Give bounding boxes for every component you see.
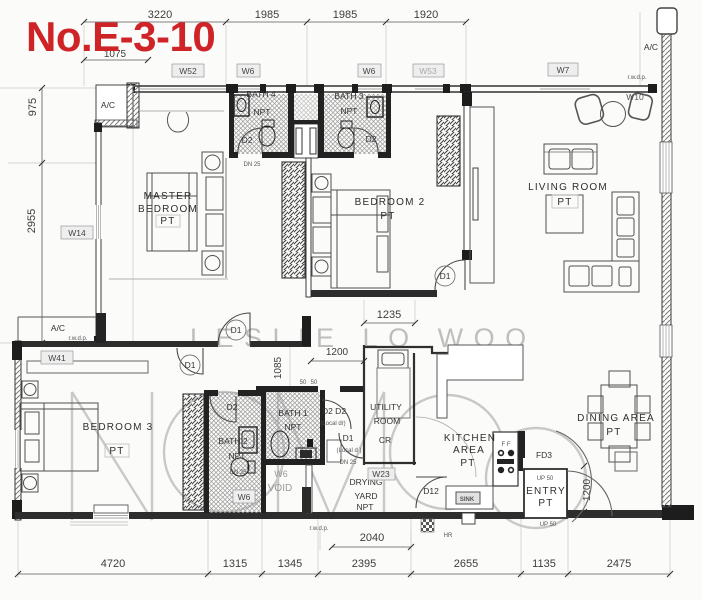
svg-text:1985: 1985 xyxy=(333,9,357,21)
svg-text:2955: 2955 xyxy=(26,209,38,233)
svg-text:r.w.d.p.: r.w.d.p. xyxy=(68,336,87,342)
svg-text:1235: 1235 xyxy=(377,309,401,321)
svg-text:PT: PT xyxy=(606,427,621,438)
svg-text:W6: W6 xyxy=(363,66,376,76)
svg-text:50: 50 xyxy=(300,380,307,386)
svg-text:1200: 1200 xyxy=(326,347,349,358)
svg-text:W53: W53 xyxy=(419,66,437,76)
svg-text:1985: 1985 xyxy=(255,9,279,21)
svg-text:W6: W6 xyxy=(274,469,288,479)
svg-text:UP 50: UP 50 xyxy=(537,476,554,482)
svg-text:AREA: AREA xyxy=(453,445,485,456)
svg-text:F F: F F xyxy=(502,442,511,448)
svg-text:BEDROOM 2: BEDROOM 2 xyxy=(355,197,426,208)
svg-text:W10: W10 xyxy=(626,92,644,102)
svg-text:50: 50 xyxy=(311,380,318,386)
svg-text:NPT: NPT xyxy=(285,422,302,432)
svg-text:NPT: NPT xyxy=(357,502,374,512)
svg-text:BEDROOM: BEDROOM xyxy=(138,204,198,215)
svg-text:r.w.d.p.: r.w.d.p. xyxy=(627,75,646,81)
svg-text:DINING AREA: DINING AREA xyxy=(577,413,655,424)
svg-text:2040: 2040 xyxy=(360,532,384,544)
svg-text:W7: W7 xyxy=(557,65,570,75)
svg-text:W6: W6 xyxy=(238,492,251,502)
svg-text:r.w.d.p.: r.w.d.p. xyxy=(309,526,328,532)
svg-text:4720: 4720 xyxy=(101,558,125,570)
svg-text:W23: W23 xyxy=(372,469,390,479)
svg-text:A/C: A/C xyxy=(101,100,115,110)
svg-text:HR: HR xyxy=(444,533,453,539)
svg-text:PT: PT xyxy=(557,197,572,208)
svg-text:2475: 2475 xyxy=(607,558,631,570)
svg-text:D1: D1 xyxy=(343,433,354,443)
svg-text:W52: W52 xyxy=(179,66,197,76)
svg-text:NPT: NPT xyxy=(229,451,246,461)
svg-text:DN 25: DN 25 xyxy=(243,162,261,168)
svg-text:D2 D2: D2 D2 xyxy=(322,406,346,416)
svg-text:D2: D2 xyxy=(242,135,253,145)
svg-text:NPT: NPT xyxy=(341,106,358,116)
svg-text:A/C: A/C xyxy=(644,42,658,52)
svg-text:975: 975 xyxy=(27,98,39,116)
svg-text:BATH 3: BATH 3 xyxy=(334,91,363,101)
svg-text:DN 25: DN 25 xyxy=(339,460,357,466)
svg-text:1135: 1135 xyxy=(532,558,556,570)
svg-text:SINK: SINK xyxy=(460,497,475,503)
svg-text:UTILITY: UTILITY xyxy=(370,402,402,412)
svg-text:BEDROOM 3: BEDROOM 3 xyxy=(83,422,154,433)
svg-text:A/C: A/C xyxy=(51,323,65,333)
svg-text:1345: 1345 xyxy=(278,558,302,570)
svg-text:CR: CR xyxy=(379,435,391,445)
svg-text:UP 50: UP 50 xyxy=(540,522,557,528)
svg-text:1085: 1085 xyxy=(273,356,284,379)
svg-text:D12: D12 xyxy=(423,486,439,496)
svg-text:No.E-3-10: No.E-3-10 xyxy=(26,13,215,60)
svg-text:(Local dr): (Local dr) xyxy=(320,421,345,427)
svg-text:2655: 2655 xyxy=(454,558,478,570)
svg-text:DN 25: DN 25 xyxy=(229,470,247,476)
svg-text:PT: PT xyxy=(538,498,553,509)
svg-text:PT: PT xyxy=(460,458,475,469)
svg-text:BATH 4: BATH 4 xyxy=(246,89,275,99)
svg-text:W41: W41 xyxy=(48,353,66,363)
svg-text:FD3: FD3 xyxy=(536,450,552,460)
svg-text:LIVING ROOM: LIVING ROOM xyxy=(528,182,608,193)
svg-text:W6: W6 xyxy=(242,66,255,76)
svg-text:D1: D1 xyxy=(231,325,242,335)
svg-text:D2: D2 xyxy=(227,402,238,412)
svg-text:PT: PT xyxy=(160,216,175,227)
svg-text:NPT: NPT xyxy=(254,107,271,117)
svg-text:PT: PT xyxy=(380,211,395,222)
svg-text:W14: W14 xyxy=(68,228,86,238)
svg-text:D1: D1 xyxy=(440,271,451,281)
svg-text:KITCHEN: KITCHEN xyxy=(444,433,496,444)
svg-text:1920: 1920 xyxy=(414,9,438,21)
svg-text:1315: 1315 xyxy=(223,558,247,570)
svg-text:D2: D2 xyxy=(366,134,377,144)
svg-text:MASTER: MASTER xyxy=(144,191,193,202)
svg-text:(Local d ): (Local d ) xyxy=(336,448,361,454)
svg-text:D1: D1 xyxy=(185,360,196,370)
svg-text:VOID: VOID xyxy=(268,483,292,494)
svg-text:ROOM: ROOM xyxy=(374,416,400,426)
svg-text:BATH 1: BATH 1 xyxy=(278,408,307,418)
svg-text:PT: PT xyxy=(109,446,124,457)
svg-text:2395: 2395 xyxy=(352,558,376,570)
svg-text:BATH 2: BATH 2 xyxy=(218,436,247,446)
svg-text:YARD: YARD xyxy=(355,491,378,501)
svg-text:ENTRY: ENTRY xyxy=(526,486,566,497)
